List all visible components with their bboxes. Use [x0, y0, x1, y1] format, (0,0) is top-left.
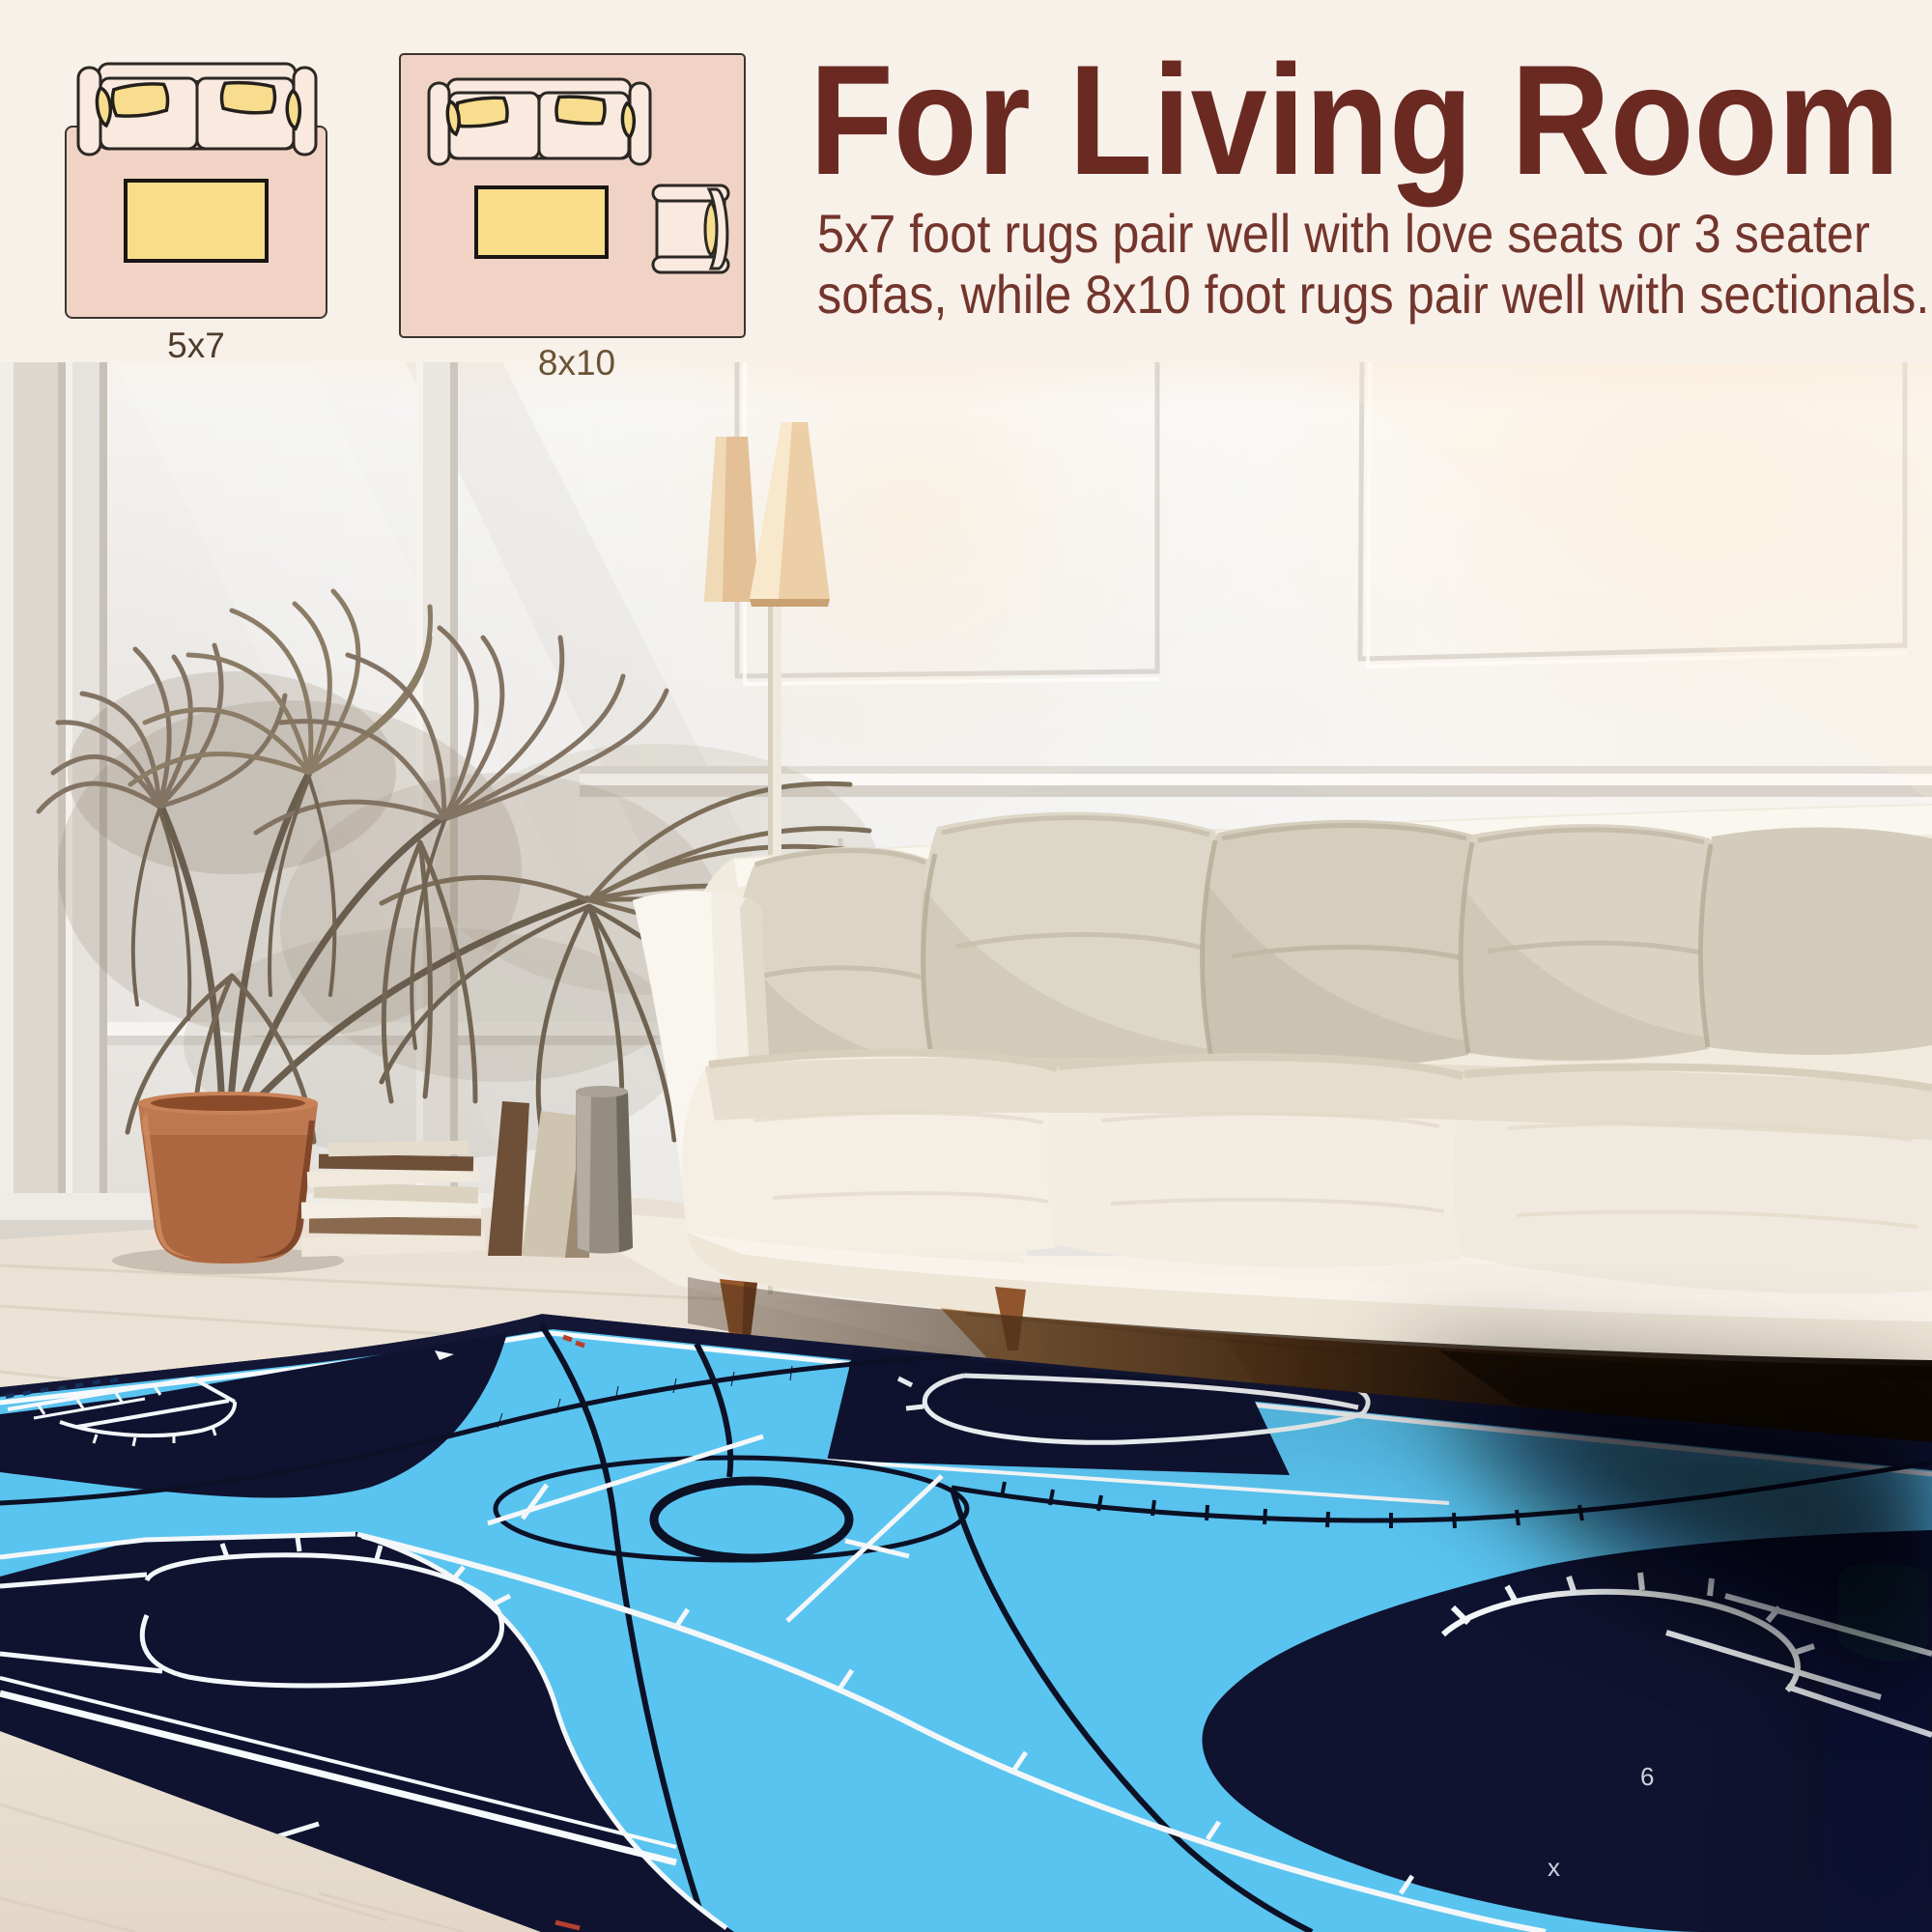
svg-text:6: 6 [1640, 1762, 1654, 1791]
svg-text:5x7: 5x7 [167, 326, 225, 365]
svg-text:x: x [1548, 1853, 1560, 1882]
svg-text:8x10: 8x10 [538, 343, 615, 383]
